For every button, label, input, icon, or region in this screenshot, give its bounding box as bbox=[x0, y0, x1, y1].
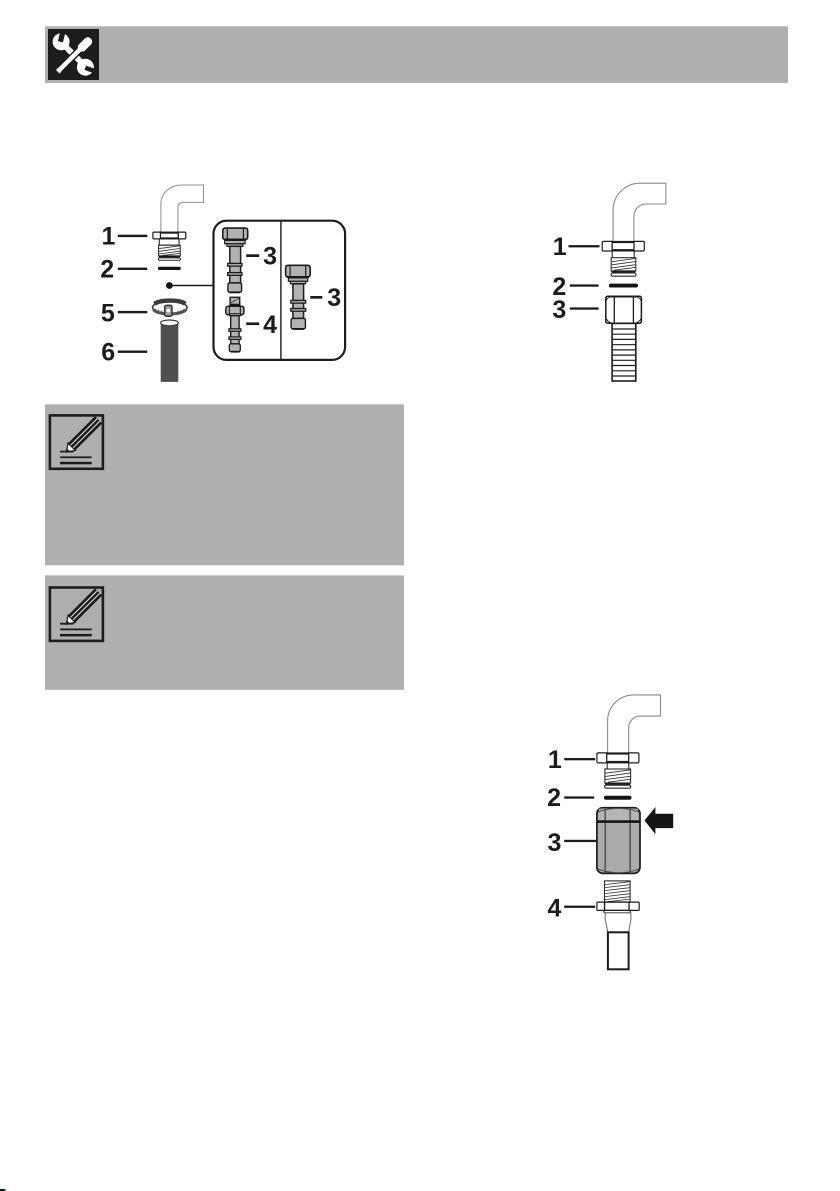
svg-text:5: 5 bbox=[101, 300, 115, 328]
svg-text:1: 1 bbox=[102, 222, 116, 250]
svg-text:4: 4 bbox=[547, 894, 561, 922]
svg-text:3: 3 bbox=[327, 284, 341, 312]
svg-text:2: 2 bbox=[100, 255, 114, 283]
svg-text:4: 4 bbox=[263, 311, 277, 339]
svg-text:3: 3 bbox=[263, 242, 277, 270]
svg-text:1: 1 bbox=[548, 746, 562, 774]
svg-text:2: 2 bbox=[547, 784, 561, 812]
svg-text:3: 3 bbox=[552, 296, 566, 324]
svg-text:1: 1 bbox=[553, 233, 567, 261]
svg-text:3: 3 bbox=[547, 829, 561, 857]
svg-text:6: 6 bbox=[101, 338, 115, 366]
